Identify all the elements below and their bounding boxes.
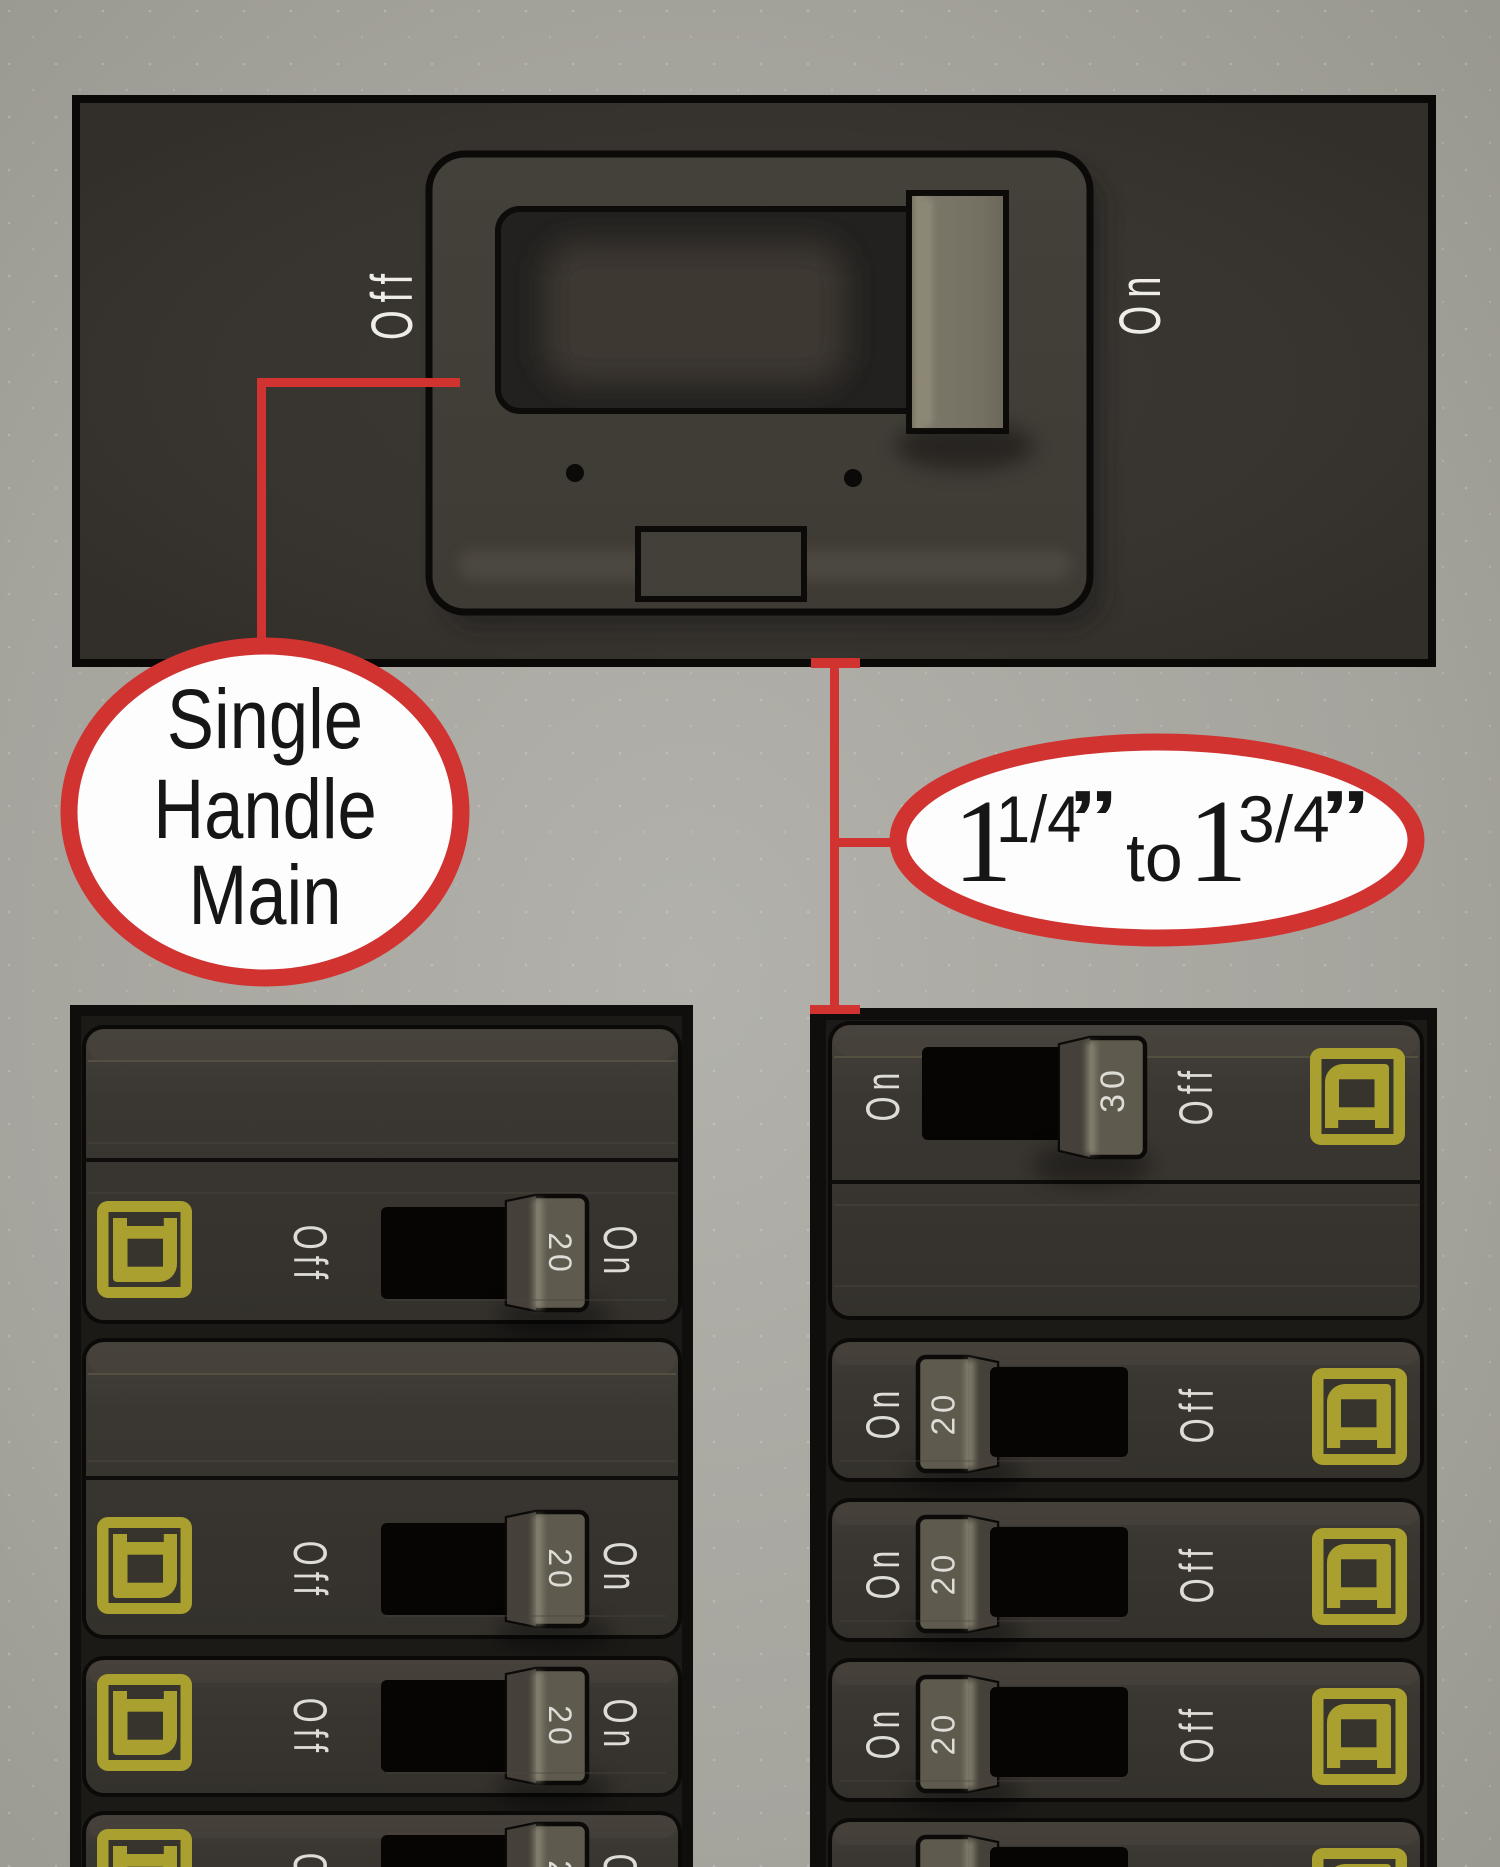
svg-text:”: ” bbox=[1320, 775, 1371, 862]
svg-text:3/4: 3/4 bbox=[1238, 782, 1330, 856]
svg-text:to: to bbox=[1126, 820, 1183, 896]
svg-text:Single: Single bbox=[167, 673, 363, 766]
svg-text:On: On bbox=[1109, 269, 1173, 336]
svg-text:Off: Off bbox=[361, 266, 425, 340]
svg-text:Handle: Handle bbox=[153, 763, 377, 856]
svg-text:Main: Main bbox=[189, 849, 342, 942]
svg-text:”: ” bbox=[1068, 775, 1119, 862]
